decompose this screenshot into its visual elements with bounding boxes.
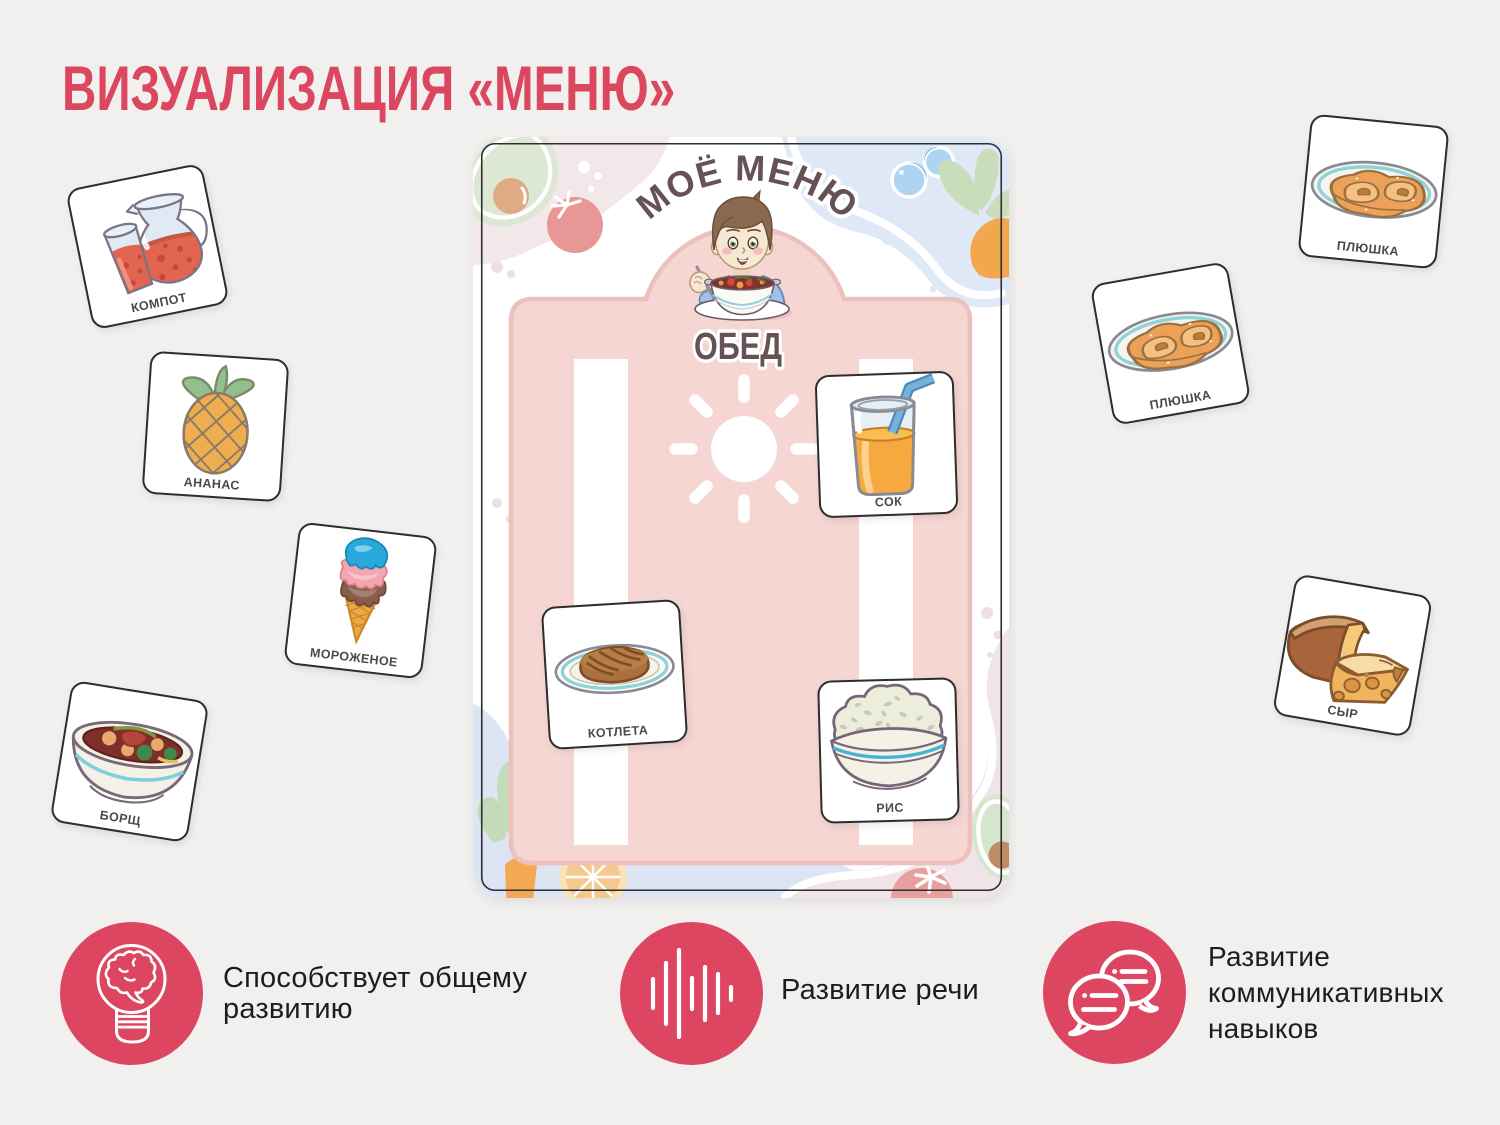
svg-text:ОБЕД: ОБЕД — [694, 326, 782, 368]
